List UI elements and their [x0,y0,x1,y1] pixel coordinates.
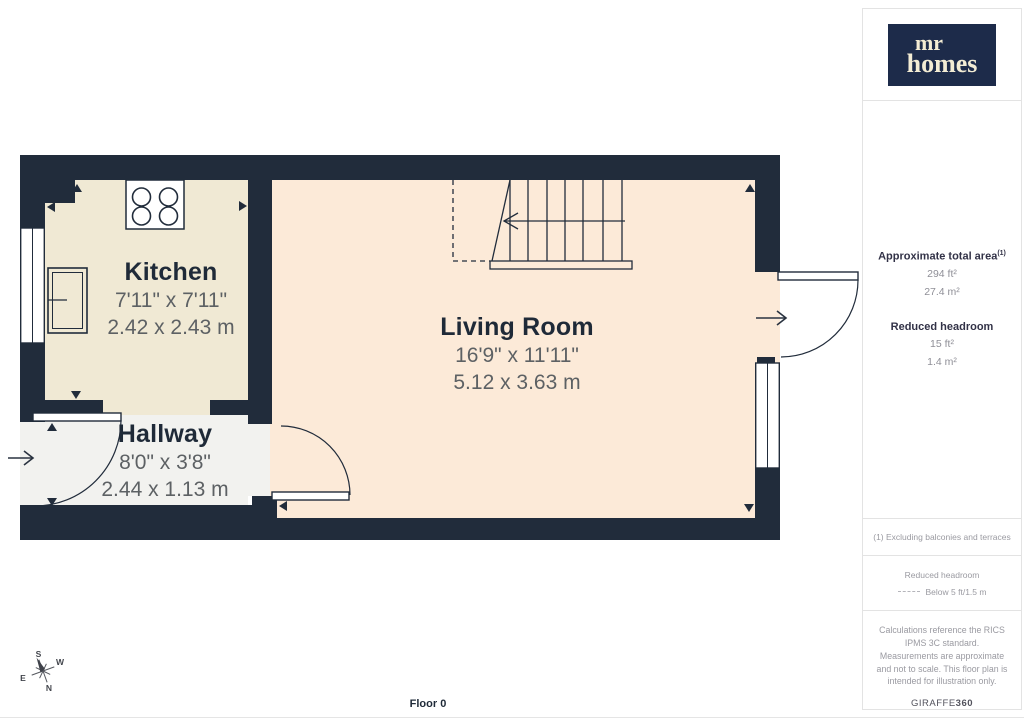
wall-kitchen-living-divider [248,155,272,424]
mr-homes-logo: mr homes [888,24,996,86]
compass-e-label: E [20,673,26,683]
cooktop-icon [126,180,184,229]
entrance-doorway-gap [20,422,45,505]
reduced-headroom-title: Reduced headroom [891,321,994,333]
wall-right-lower [755,468,780,518]
footnote-marker: (1) [997,250,1006,257]
area-summary-section: Approximate total area(1) 294 ft² 27.4 m… [863,101,1021,519]
wall-kitchen-hallway-right [210,400,248,415]
giraffe360-brand: GIRAFFE360 [876,698,1008,709]
disclaimer-text: Calculations reference the RICS IPMS 3C … [876,624,1008,688]
page-bottom-divider [0,717,1024,718]
giraffe360-brand-suffix: 360 [956,698,973,709]
legend-section: Reduced headroom Below 5 ft/1.5 m [863,556,1021,611]
total-area-imperial: 294 ft² [927,268,957,281]
wall-kitchen-notch [45,180,75,203]
room-floors [20,180,780,518]
hallway-floor [45,415,248,505]
patio-door-swing-arc [781,280,858,357]
floorplan-page: S W E N Kitchen 7'11" x 7'11" 2.42 x 2.4… [0,0,1024,724]
logo-text-bottom: homes [907,52,978,76]
hallway-living-door-leaf [272,492,349,500]
wall-bottom-hallway [20,505,252,540]
reduced-headroom-imperial: 15 ft² [930,338,954,351]
compass-s-label: S [36,649,42,659]
dashed-line-icon [898,591,920,592]
floor-label: Floor 0 [368,698,488,710]
giraffe360-brand-name: GIRAFFE [911,698,956,709]
hallway-living-doorway-gap [248,424,272,496]
patio-door-leaf [778,272,858,280]
disclaimer-section: Calculations reference the RICS IPMS 3C … [863,611,1021,709]
info-sidebar: mr homes Approximate total area(1) 294 f… [862,8,1022,710]
compass-n-label: N [46,683,52,693]
legend-value: Below 5 ft/1.5 m [926,587,987,597]
footnote-section: (1) Excluding balconies and terraces [863,519,1021,556]
living-room-floor [270,180,755,518]
footnote-text: (1) Excluding balconies and terraces [873,532,1011,542]
logo-section: mr homes [863,9,1021,101]
wall-left-upper [20,180,45,228]
wall-right-upper [755,180,780,272]
wall-bottom-living [250,518,780,540]
total-area-title: Approximate total area(1) [878,250,1006,263]
total-area-metric: 27.4 m² [924,286,960,299]
patio-door [778,272,858,357]
front-door-leaf [33,413,121,421]
legend-title: Reduced headroom [905,570,980,580]
compass-rose-icon: S W E N [20,649,65,693]
compass-w-label: W [56,657,65,667]
wall-top [20,155,780,180]
total-area-title-text: Approximate total area [878,251,997,263]
reduced-headroom-metric: 1.4 m² [927,356,957,369]
